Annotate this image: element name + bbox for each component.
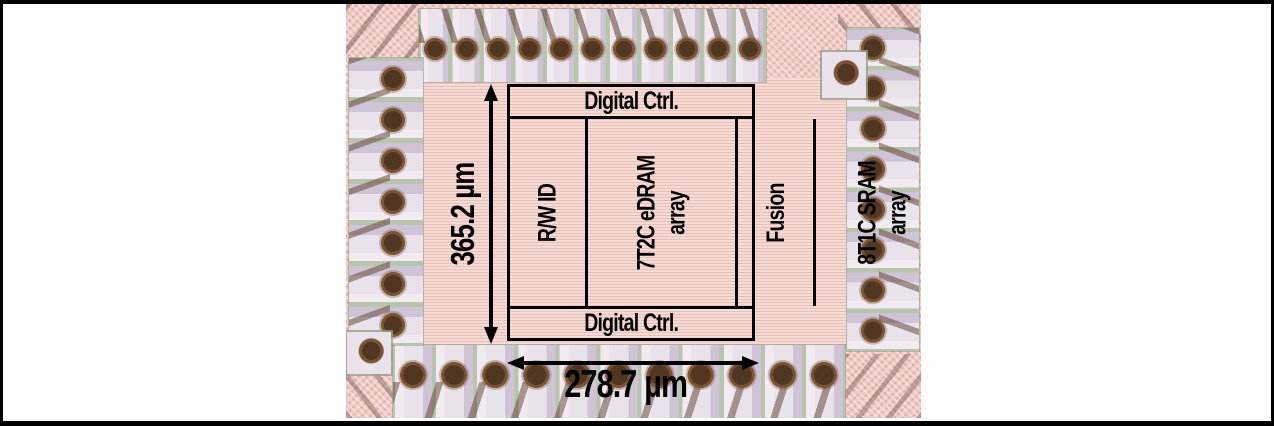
height-dimension-arrow	[484, 84, 498, 344]
block-label-rw-id-left: R/W ID	[532, 183, 562, 241]
arrowhead-down-icon	[484, 327, 498, 344]
block-edram-array: 7T2C eDRAM array	[588, 119, 738, 306]
height-dimension: 365.2 µm	[442, 84, 484, 344]
label-line: array	[661, 155, 691, 270]
bond-pad-row-top	[419, 9, 766, 82]
bond-pad-column-left	[349, 58, 423, 345]
label-line: R/W ID	[532, 183, 562, 241]
block-rw-id-left: R/W ID	[510, 119, 588, 306]
block-label-sram-array: 8T1C SRAM array	[853, 161, 913, 264]
block-digital-ctrl-top: Digital Ctrl.	[510, 87, 752, 119]
height-dimension-label: 365.2 µm	[444, 162, 482, 265]
width-dimension-label: 278.7 µm	[565, 363, 688, 407]
block-label-fusion: Fusion	[761, 183, 791, 242]
block-fusion: Fusion	[738, 119, 817, 306]
floorplan-overlay: Digital Ctrl. R/W ID 7T2C eDRAM array	[507, 84, 755, 341]
block-label-digital-ctrl-top: Digital Ctrl.	[584, 87, 678, 116]
block-label-edram-array: 7T2C eDRAM array	[631, 155, 691, 270]
label-line: array	[883, 161, 913, 264]
arrow-shaft	[489, 94, 493, 334]
block-sram-array: 8T1C SRAM array	[816, 119, 921, 306]
block-digital-ctrl-bottom: Digital Ctrl.	[510, 306, 752, 338]
label-line: 7T2C eDRAM	[631, 155, 661, 270]
bond-wires-bottom-right	[844, 354, 921, 418]
chip-photo: Digital Ctrl. R/W ID 7T2C eDRAM array	[346, 4, 921, 418]
width-dimension: 278.7 µm	[501, 362, 751, 408]
block-label-digital-ctrl-bottom: Digital Ctrl.	[584, 309, 678, 338]
floorplan-columns: R/W ID 7T2C eDRAM array Fusion 8	[510, 119, 752, 306]
label-line: 8T1C SRAM	[853, 161, 883, 264]
die-micrograph-figure: Digital Ctrl. R/W ID 7T2C eDRAM array	[0, 0, 1274, 426]
corner-bond-pad-top-right	[822, 52, 866, 98]
label-line: Fusion	[761, 183, 791, 242]
corner-bond-pad-bottom-left	[347, 332, 391, 374]
